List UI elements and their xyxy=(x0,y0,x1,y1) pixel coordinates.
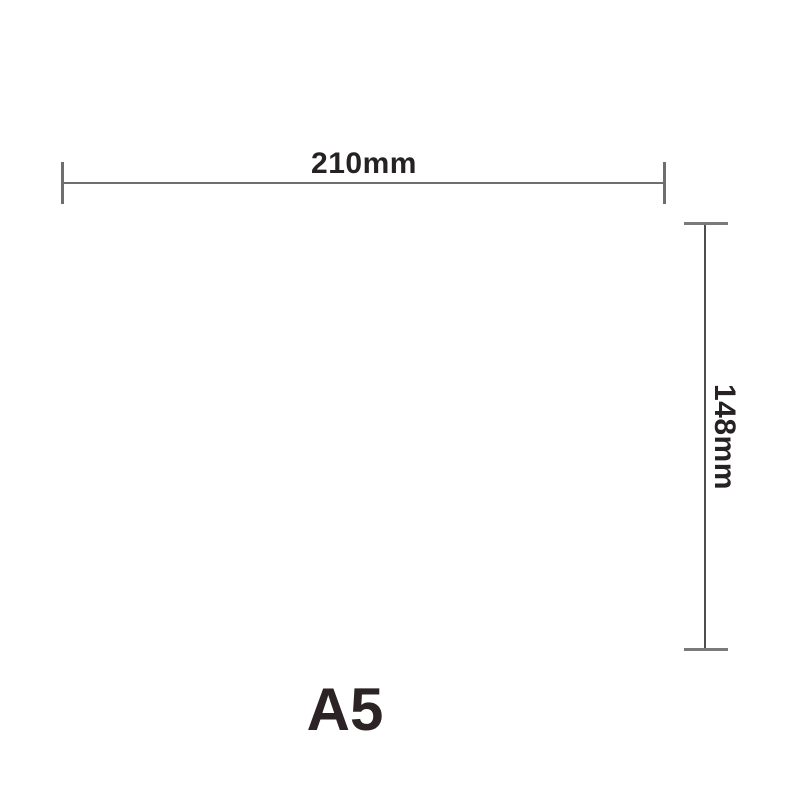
height-dimension-line xyxy=(704,223,706,651)
paper-size-label: A5 xyxy=(62,680,628,740)
width-dimension-label: 210mm xyxy=(62,149,666,179)
dimension-diagram: 210mm 148mm A5 xyxy=(0,0,800,800)
height-dimension-label: 148mm xyxy=(708,223,740,651)
width-dimension-left-tick xyxy=(61,162,64,204)
width-dimension-line xyxy=(62,182,666,184)
width-dimension-right-tick xyxy=(663,162,666,204)
